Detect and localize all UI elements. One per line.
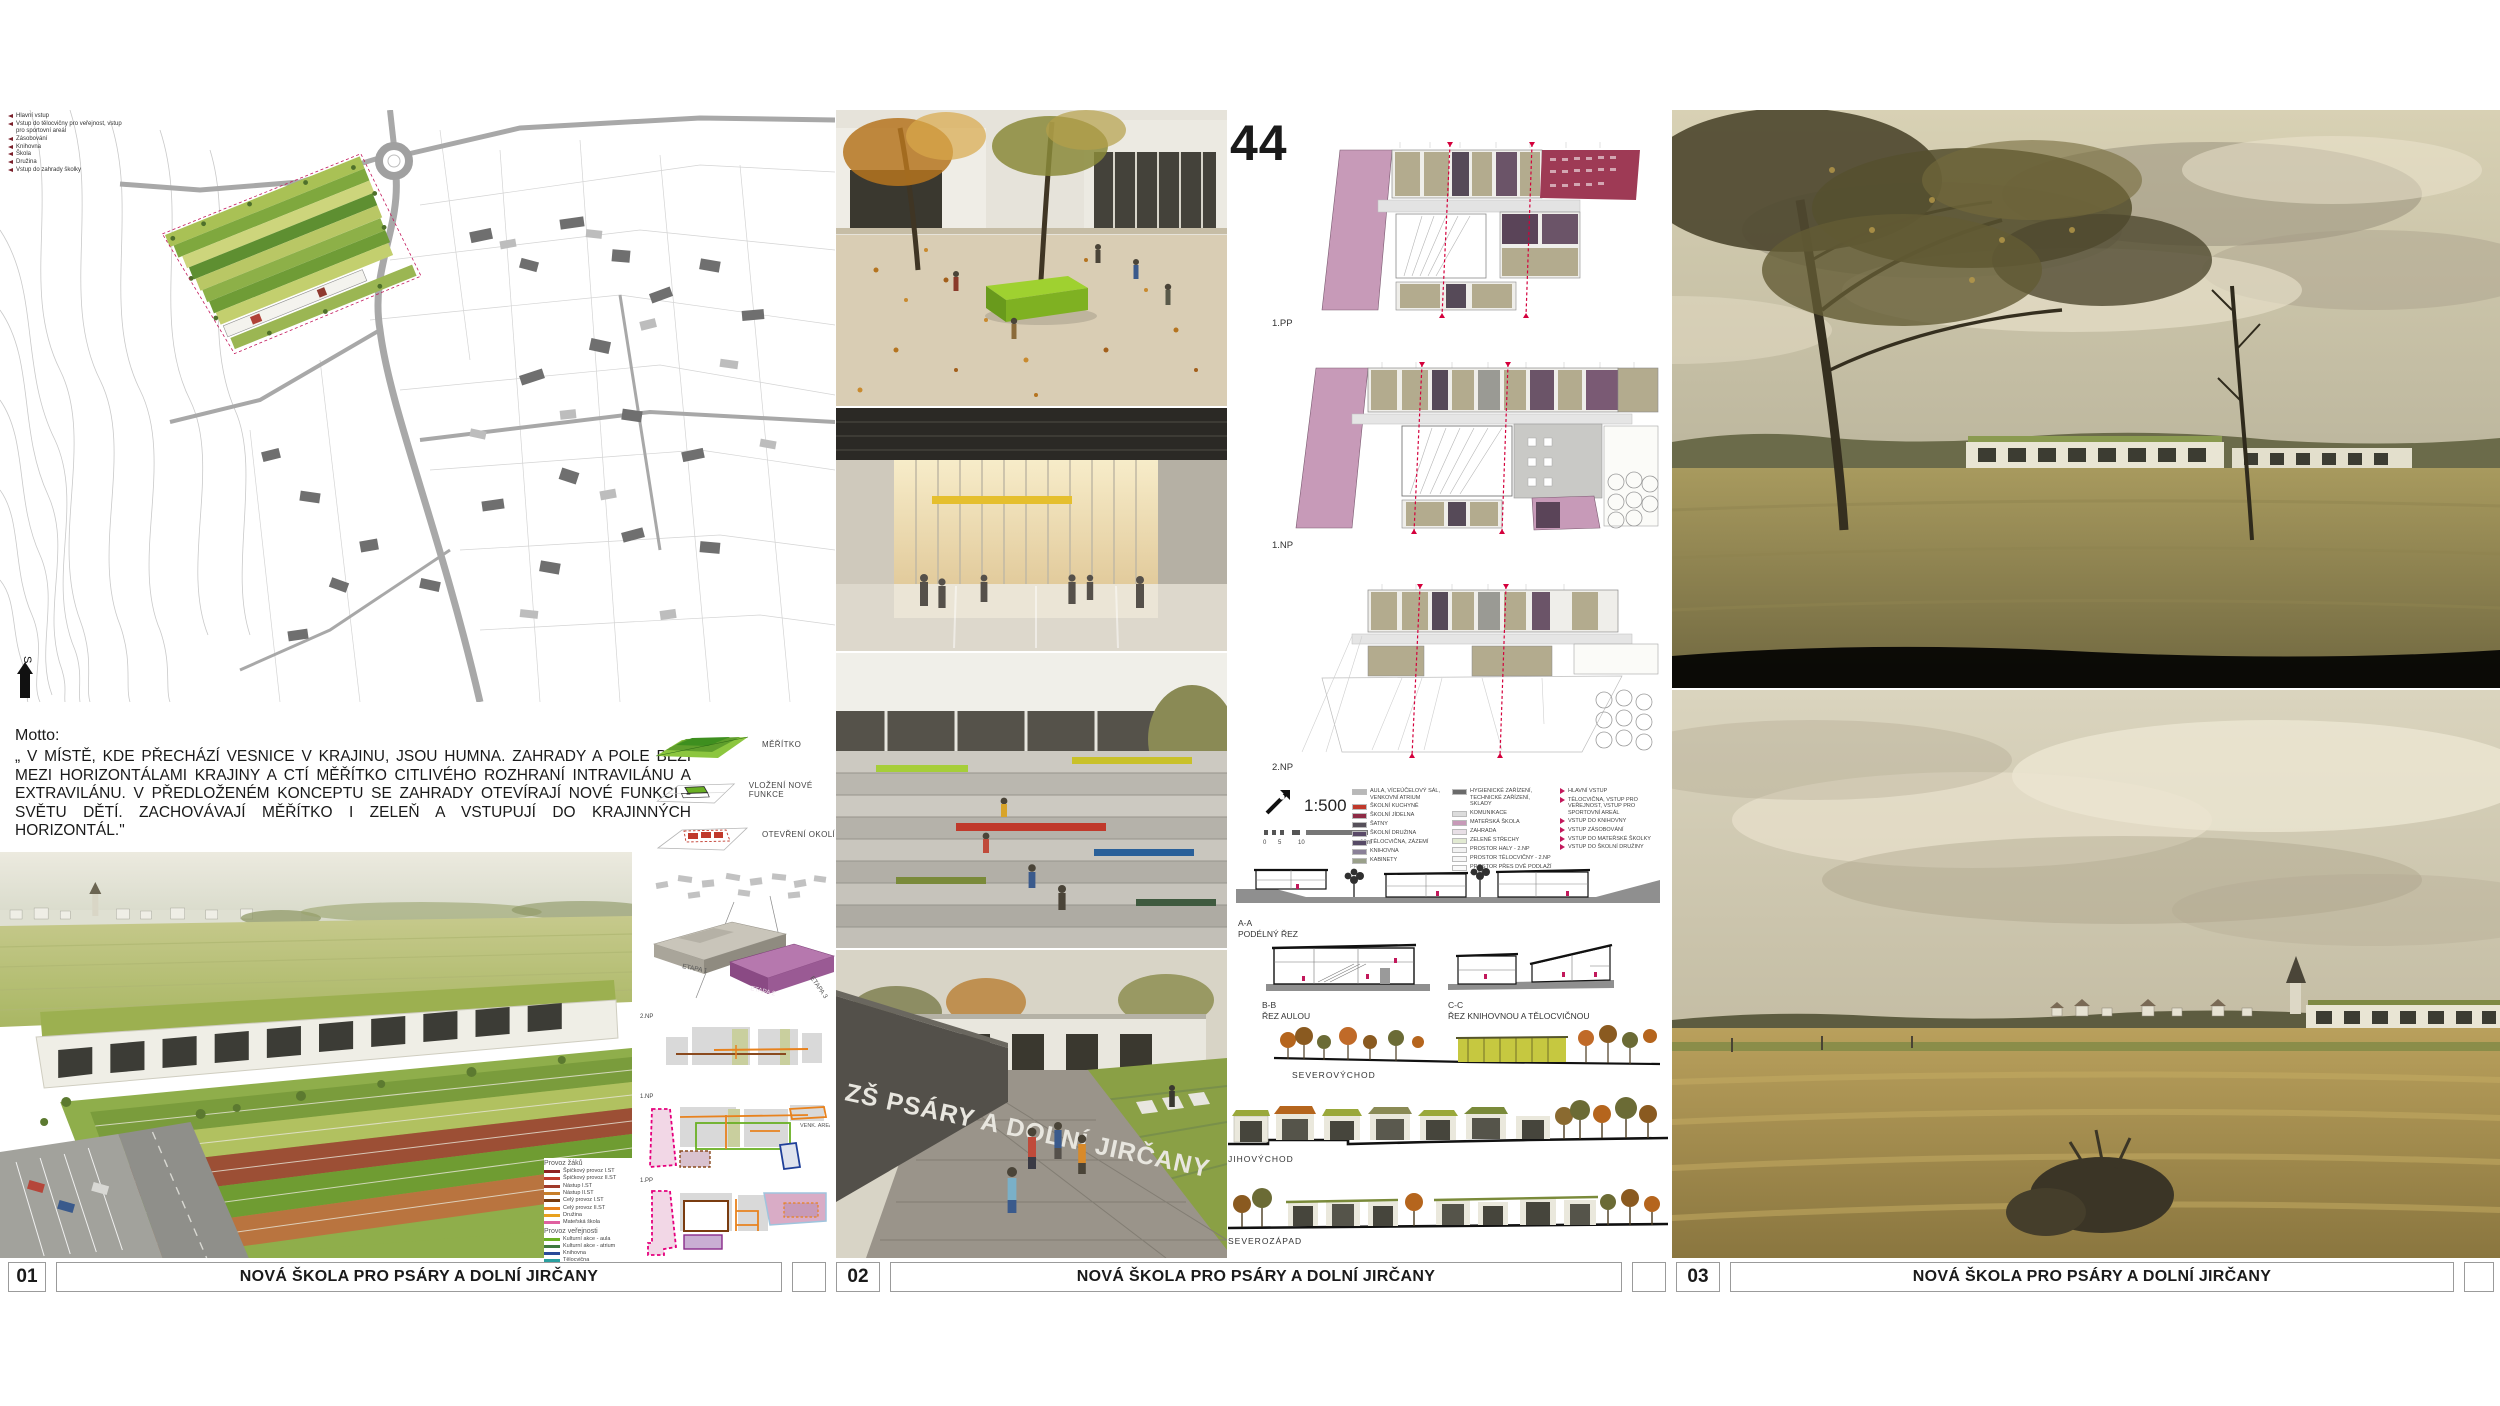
yellow-beam: [932, 496, 1072, 504]
site-plan-legend: Hlavní vstup Vstup do tělocvičny pro veř…: [8, 113, 130, 175]
scheme-plan-1pp: [640, 1185, 830, 1259]
plan-legend-item: HYGIENICKÉ ZAŘÍZENÍ, TECHNICKÉ ZAŘÍZENÍ,…: [1452, 788, 1552, 808]
terraces-diagram-icon: [652, 724, 752, 766]
panel-number: 03: [1687, 1266, 1708, 1288]
concept-diagram-function: VLOŽENÍ NOVÉ FUNKCE: [652, 767, 837, 812]
plan-legend-item: VSTUP DO KNIHOVNY: [1560, 818, 1662, 825]
contour-lines: [0, 110, 250, 702]
plan-legend-label: VSTUP ZÁSOBOVÁNÍ: [1568, 827, 1624, 834]
flow-legend-item: Celý provoz II.ST: [544, 1205, 640, 1211]
flow-color-swatch: [544, 1245, 560, 1248]
legend-color-swatch: [1352, 813, 1367, 819]
plan-legend-item: HLAVNÍ VSTUP: [1560, 788, 1662, 795]
flow-color-swatch: [544, 1185, 560, 1188]
legend-color-swatch: [1352, 822, 1367, 828]
legend-color-swatch: [1352, 789, 1367, 795]
concept-diagram-label: OTEVŘENÍ OKOLÍ: [762, 830, 835, 839]
building-footprints-light: [469, 229, 776, 620]
site-legend-item: Knihovna: [8, 144, 130, 151]
flow-legend-label: Družina: [563, 1212, 582, 1218]
site-legend-label: Družina: [16, 159, 37, 166]
flow-color-swatch: [544, 1221, 560, 1224]
roads: [120, 110, 835, 702]
scale-tick: 10: [1298, 840, 1305, 846]
flow-legend-label: Celý provoz II.ST: [563, 1205, 605, 1211]
plan-legend-item: TĚLOCVIČNA, ZÁZEMÍ: [1352, 839, 1446, 846]
plan-legend-item: KNIHOVNA: [1352, 848, 1446, 855]
plan-legend-item: VSTUP ZÁSOBOVÁNÍ: [1560, 827, 1662, 834]
plan-scale: 1:500: [1304, 796, 1347, 816]
concept-diagram-scale: MĚŘÍTKO: [652, 722, 837, 767]
footer-spacer-box: [1632, 1262, 1666, 1292]
section-bb-label: B-B ŘEZ AULOU: [1262, 1000, 1310, 1021]
section-cc-label: C-C ŘEZ KNIHOVNOU A TĚLOCVIČNOU: [1448, 1000, 1590, 1021]
panel-03-title-box: NOVÁ ŠKOLA PRO PSÁRY A DOLNÍ JIRČANY: [1730, 1262, 2454, 1292]
flow-legend-item: Kulturní akce - aula: [544, 1236, 640, 1242]
entrance-arrow-icon: [1560, 788, 1565, 794]
rendering-courtyard: [836, 110, 1227, 406]
hall-space: [1514, 424, 1602, 498]
panel-03-number-box: 03: [1676, 1262, 1720, 1292]
scheme-plan-1np: VENK. AREÁL: [640, 1101, 830, 1175]
pavilion-row: [1286, 1197, 1598, 1226]
panel-number: 01: [16, 1266, 37, 1288]
flow-legend-item: Nástup I.ST: [544, 1183, 640, 1189]
footer-spacer-box: [2464, 1262, 2494, 1292]
section-code: A-A: [1238, 918, 1298, 929]
rendering-steps: [836, 653, 1227, 948]
north-letter: S: [21, 656, 33, 663]
floor-plan-2np: [1282, 584, 1660, 758]
panel-02-number-box: 02: [836, 1262, 880, 1292]
plan-legend-item: ZAHRADA: [1452, 828, 1552, 835]
context-blocks: [656, 873, 827, 899]
floor-plan-1pp: [1300, 142, 1640, 318]
legend-color-swatch: [1352, 804, 1367, 810]
flow-legend-item: Mateřská škola: [544, 1219, 640, 1225]
site-legend-label: Hlavní vstup: [16, 113, 49, 120]
plan-legend-item: VSTUP DO ŠKOLNÍ DRUŽINY: [1560, 844, 1662, 851]
entrance-arrow-icon: [1560, 818, 1565, 824]
elevation-ne-drawing: [1268, 1024, 1664, 1068]
entrance-arrow-icon: [8, 152, 13, 156]
panel-02-title-box: NOVÁ ŠKOLA PRO PSÁRY A DOLNÍ JIRČANY: [890, 1262, 1622, 1292]
section-bb-drawing: [1262, 938, 1434, 996]
section-code: C-C: [1448, 1000, 1590, 1011]
elevation-sz-drawing: [1228, 1186, 1668, 1234]
plan-legend-label: ŠATNY: [1370, 821, 1388, 828]
flow-legend-label: Špičkový provoz II.ST: [563, 1175, 616, 1181]
panel-title: NOVÁ ŠKOLA PRO PSÁRY A DOLNÍ JIRČANY: [1913, 1268, 2271, 1286]
flow-legend-item: Špičkový provoz I.ST: [544, 1168, 640, 1174]
plan-legend-col3: HLAVNÍ VSTUP TĚLOCVIČNA, VSTUP PRO VEŘEJ…: [1560, 788, 1662, 853]
flow-legend-items: Špičkový provoz I.ST Špičkový provoz II.…: [544, 1168, 640, 1226]
mother-school-band: [1322, 150, 1392, 310]
phase-label: ETAPA 3: [808, 975, 829, 1000]
scheme-annotation: VENK. AREÁL: [800, 1122, 830, 1129]
site-legend-item: Hlavní vstup: [8, 113, 130, 120]
legend-color-swatch: [1452, 847, 1467, 853]
site-legend-item: Vstup do tělocvičny pro veřejnost, vstup…: [8, 121, 130, 135]
new-function-diagram-icon: [652, 769, 739, 811]
panel-01-title-box: NOVÁ ŠKOLA PRO PSÁRY A DOLNÍ JIRČANY: [56, 1262, 782, 1292]
roundabout: [379, 146, 409, 176]
site-plan-svg: [0, 110, 835, 702]
flow-legend-item: Celý provoz I.ST: [544, 1197, 640, 1203]
sheet-number: 44: [1230, 118, 1288, 168]
scheme-plan-label-1pp: 1.PP: [640, 1178, 653, 1184]
flow-legend-label: Knihovna: [563, 1250, 586, 1256]
site-legend-label: Vstup do tělocvičny pro veřejnost, vstup…: [16, 121, 130, 135]
flow-legend-label: Nástup I.ST: [563, 1183, 592, 1189]
flow-legend-group-title: Provoz žáků: [544, 1160, 640, 1167]
concept-diagram-label: VLOŽENÍ NOVÉ FUNKCE: [749, 781, 837, 799]
flow-legend: Provoz žáků Špičkový provoz I.ST Špičkov…: [544, 1158, 640, 1278]
entrance-arrow-icon: [8, 160, 13, 164]
scheme-plan-label-1np: 1.NP: [640, 1094, 653, 1100]
panel-01-number-box: 01: [8, 1262, 46, 1292]
elevation-jv-drawing: [1228, 1094, 1668, 1152]
plan-legend-label: KNIHOVNA: [1370, 848, 1399, 855]
section-code: B-B: [1262, 1000, 1310, 1011]
flow-color-swatch: [544, 1252, 560, 1255]
flow-legend-label: Špičkový provoz I.ST: [563, 1168, 615, 1174]
plan-legend-item: ŠKOLNÍ JÍDELNA: [1352, 812, 1446, 819]
site-legend-item: Družina: [8, 159, 130, 166]
concept-diagram-opening: OTEVŘENÍ OKOLÍ: [652, 812, 837, 857]
site-legend-item: Vstup do zahrady školky: [8, 167, 130, 174]
scale-tick: 5: [1278, 840, 1282, 846]
plan-legend-item: AULA, VÍCEÚČELOVÝ SÁL, VENKOVNÍ ATRIUM: [1352, 788, 1446, 801]
flow-color-swatch: [544, 1214, 560, 1217]
legend-color-swatch: [1452, 820, 1467, 826]
plan-legend-label: VSTUP DO MATEŘSKÉ ŠKOLKY: [1568, 836, 1651, 843]
site-legend-item: Zásobování: [8, 136, 130, 143]
site-legend-label: Škola: [16, 151, 31, 158]
competition-board-page: { "board": { "footer": { "panels": [ {"n…: [0, 0, 2500, 1406]
site-plan-drawing: [0, 110, 835, 702]
floor-plan-label-1pp: 1.PP: [1272, 318, 1293, 329]
aerial-rendering: [0, 852, 632, 1258]
flow-legend-label: Celý provoz I.ST: [563, 1197, 604, 1203]
plan-legend-item: MATEŘSKÁ ŠKOLA: [1452, 819, 1552, 826]
entrance-arrow-icon: [1560, 836, 1565, 842]
plan-legend-col1: AULA, VÍCEÚČELOVÝ SÁL, VENKOVNÍ ATRIUM Š…: [1352, 788, 1446, 866]
scale-tick: 0: [1263, 840, 1267, 846]
flow-legend-label: Mateřská škola: [563, 1219, 600, 1225]
plan-legend-item: KOMUNIKACE: [1452, 810, 1552, 817]
motto-text: „ V MÍSTĚ, KDE PŘECHÁZÍ VESNICE V KRAJIN…: [15, 748, 691, 841]
flow-color-swatch: [544, 1238, 560, 1241]
legend-color-swatch: [1352, 831, 1367, 837]
pavilion-row: [1232, 1106, 1550, 1142]
panel-title: NOVÁ ŠKOLA PRO PSÁRY A DOLNÍ JIRČANY: [1077, 1268, 1435, 1286]
entrance-arrow-icon: [1560, 827, 1565, 833]
flow-color-swatch: [544, 1199, 560, 1202]
plan-legend-item: PROSTOR HALY - 2.NP: [1452, 846, 1552, 853]
panel-title: NOVÁ ŠKOLA PRO PSÁRY A DOLNÍ JIRČANY: [240, 1268, 598, 1286]
mother-school-band: [1296, 368, 1368, 528]
phasing-axonometric: ETAPA 1 ETAPA 2 ETAPA 3: [638, 866, 836, 1014]
flow-legend-item: Kulturní akce - atrium: [544, 1243, 640, 1249]
plan-legend-item: ŠKOLNÍ KUCHYNĚ: [1352, 803, 1446, 810]
plan-legend-label: KOMUNIKACE: [1470, 810, 1507, 817]
flow-color-swatch: [544, 1192, 560, 1195]
opening-diagram-icon: [652, 814, 752, 856]
elevation-jv-label: JIHOVÝCHOD: [1228, 1154, 1294, 1164]
entrance-arrow-icon: [1560, 797, 1565, 803]
photo-landscape-tree: [1672, 110, 2500, 688]
entrance-arrow-icon: [8, 122, 13, 126]
entrance-arrow-icon: [8, 145, 13, 149]
plan-legend-item: ŠATNY: [1352, 821, 1446, 828]
scheme-plan-2np: [640, 1021, 830, 1091]
plan-legend-label: TĚLOCVIČNA, VSTUP PRO VEŘEJNOST, VSTUP P…: [1568, 797, 1662, 817]
legend-color-swatch: [1352, 849, 1367, 855]
site-legend-label: Knihovna: [16, 144, 41, 151]
legend-color-swatch: [1452, 838, 1467, 844]
elevation-sz-label: SEVEROZÁPAD: [1228, 1236, 1302, 1246]
plan-legend-label: ŠKOLNÍ KUCHYNĚ: [1370, 803, 1419, 810]
motto-block: Motto: „ V MÍSTĚ, KDE PŘECHÁZÍ VESNICE V…: [15, 727, 691, 841]
flow-legend-item: Nástup II.ST: [544, 1190, 640, 1196]
plan-legend-label: ŠKOLNÍ DRUŽINA: [1370, 830, 1416, 837]
flow-legend-label: Nástup II.ST: [563, 1190, 594, 1196]
plan-legend-item: ZELENÉ STŘECHY: [1452, 837, 1552, 844]
footer-spacer-box: [792, 1262, 826, 1292]
plan-legend-label: MATEŘSKÁ ŠKOLA: [1470, 819, 1520, 826]
flow-legend-item: Družina: [544, 1212, 640, 1218]
section-aa-drawing: [1236, 858, 1660, 914]
plan-legend-item: TĚLOCVIČNA, VSTUP PRO VEŘEJNOST, VSTUP P…: [1560, 797, 1662, 817]
photo-landscape-village: [1672, 690, 2500, 1258]
plan-legend-item: ŠKOLNÍ DRUŽINA: [1352, 830, 1446, 837]
school-row: [2306, 1000, 2500, 1029]
plan-legend-label: AULA, VÍCEÚČELOVÝ SÁL, VENKOVNÍ ATRIUM: [1370, 788, 1446, 801]
concept-diagrams: MĚŘÍTKO VLOŽENÍ NOVÉ FUNKCE OTEVŘENÍ OKO…: [652, 722, 837, 857]
rendering-interior: [836, 408, 1227, 651]
entrance-arrow-icon: [8, 137, 13, 141]
rendering-entrance: ZŠ PSÁRY A DOLNÍ JIRČANY: [836, 950, 1227, 1258]
concept-diagram-label: MĚŘÍTKO: [762, 740, 801, 749]
motto-heading: Motto:: [15, 727, 691, 745]
plan-legend-label: HYGIENICKÉ ZAŘÍZENÍ, TECHNICKÉ ZAŘÍZENÍ,…: [1470, 788, 1552, 808]
section-name: ŘEZ KNIHOVNOU A TĚLOCVIČNOU: [1448, 1011, 1590, 1022]
plan-legend-label: VSTUP DO ŠKOLNÍ DRUŽINY: [1568, 844, 1644, 851]
plan-legend-item: VSTUP DO MATEŘSKÉ ŠKOLKY: [1560, 836, 1662, 843]
scheme-plan-label-2np: 2.NP: [640, 1014, 653, 1020]
flow-legend-label: Kulturní akce - aula: [563, 1236, 610, 1242]
entrance-arrow-icon: [8, 114, 13, 118]
legend-color-swatch: [1452, 811, 1467, 817]
flow-legend-label: Kulturní akce - atrium: [563, 1243, 615, 1249]
plan-legend-label: ŠKOLNÍ JÍDELNA: [1370, 812, 1414, 819]
entrance-arrow-icon: [8, 168, 13, 172]
panel-number: 02: [847, 1266, 868, 1288]
plan-legend-label: VSTUP DO KNIHOVNY: [1568, 818, 1626, 825]
legend-color-swatch: [1352, 840, 1367, 846]
flow-legend-group-pupils: Provoz žáků Špičkový provoz I.ST Špičkov…: [544, 1160, 640, 1226]
site-legend-label: Vstup do zahrady školky: [16, 167, 81, 174]
plan-legend-label: TĚLOCVIČNA, ZÁZEMÍ: [1370, 839, 1428, 846]
elevation-ne-label: SEVEROVÝCHOD: [1292, 1070, 1376, 1080]
legend-color-swatch: [1452, 829, 1467, 835]
north-arrow: S: [12, 652, 38, 700]
flow-legend-group-title: Provoz veřejnosti: [544, 1228, 640, 1235]
flow-legend-item: Knihovna: [544, 1250, 640, 1256]
flow-color-swatch: [544, 1177, 560, 1180]
section-name: ŘEZ AULOU: [1262, 1011, 1310, 1022]
flow-color-swatch: [544, 1170, 560, 1173]
floor-plan-label-1np: 1.NP: [1272, 540, 1293, 551]
flow-legend-item: Špičkový provoz II.ST: [544, 1175, 640, 1181]
site-legend-item: Škola: [8, 151, 130, 158]
section-aa-label: A-A PODÉLNÝ ŘEZ: [1238, 918, 1298, 939]
floor-plan-label-2np: 2.NP: [1272, 762, 1293, 773]
plan-legend-label: ZAHRADA: [1470, 828, 1496, 835]
section-cc-drawing: [1444, 938, 1620, 996]
plan-legend-label: ZELENÉ STŘECHY: [1470, 837, 1519, 844]
site-legend-label: Zásobování: [16, 136, 47, 143]
plan-legend-label: PROSTOR HALY - 2.NP: [1470, 846, 1530, 853]
legend-color-swatch: [1452, 789, 1467, 795]
entrance-arrow-icon: [1560, 844, 1565, 850]
plan-north-arrow: [1262, 788, 1292, 818]
elevation-trees: [1555, 1097, 1657, 1139]
plan-legend-label: HLAVNÍ VSTUP: [1568, 788, 1607, 795]
floor-plan-1np: [1282, 362, 1660, 534]
flow-color-swatch: [544, 1207, 560, 1210]
